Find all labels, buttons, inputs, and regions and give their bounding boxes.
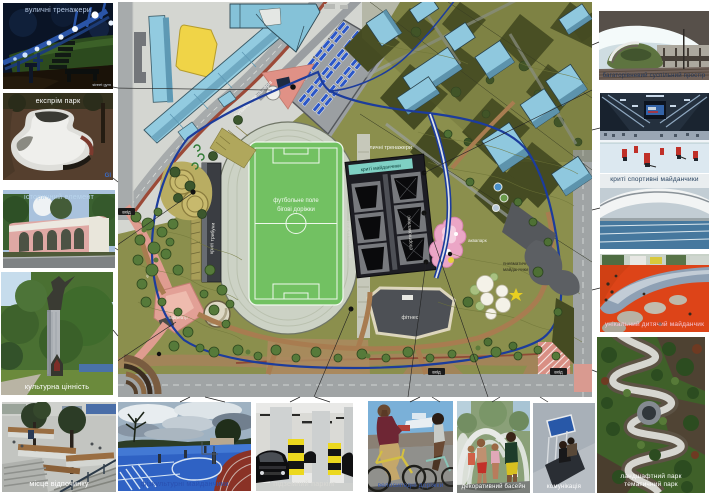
svg-text:аквапарк: аквапарк — [468, 238, 487, 243]
svg-text:майданчики: майданчики — [503, 266, 529, 272]
svg-text:футбольне поле: футбольне поле — [273, 198, 319, 204]
svg-text:вхід: вхід — [122, 210, 131, 215]
svg-text:вуличні тренажери: вуличні тренажери — [364, 145, 412, 151]
svg-text:фітнес: фітнес — [401, 315, 418, 321]
svg-text:пневматичні: пневматичні — [503, 261, 529, 266]
svg-text:вхід: вхід — [554, 370, 563, 375]
svg-text:бігові доріжки: бігові доріжки — [277, 207, 315, 213]
svg-text:вхід: вхід — [432, 370, 441, 375]
